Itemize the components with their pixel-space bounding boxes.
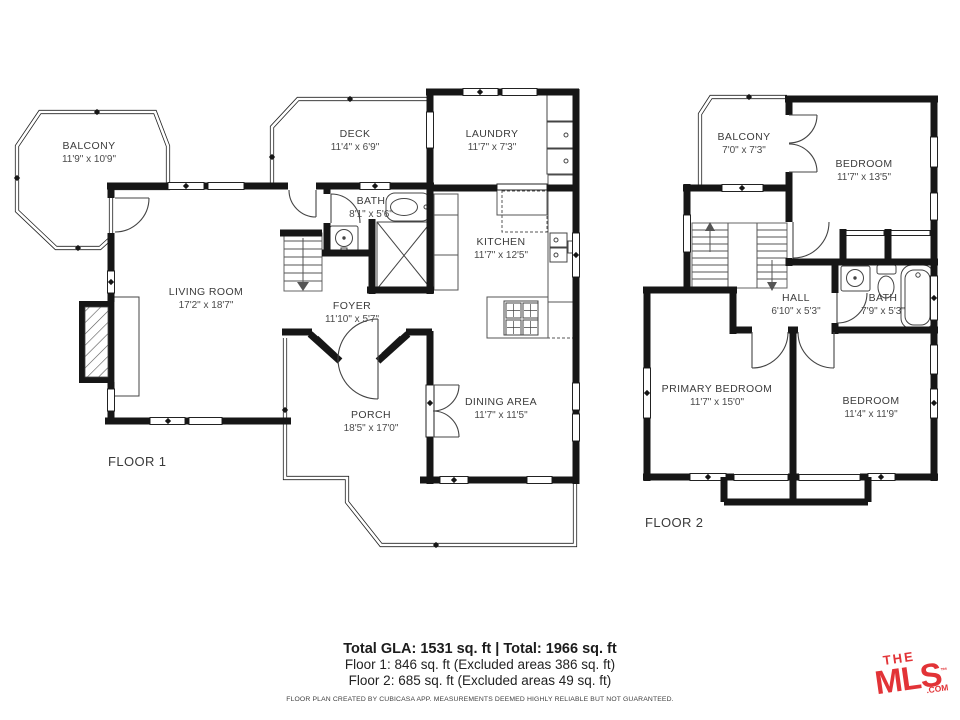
room-name: DINING AREA [465, 396, 537, 409]
room-dims: 11'7" x 7'3" [468, 141, 517, 154]
room-label-floor2-hall: HALL 6'10" x 5'3" [771, 292, 820, 318]
room-label-floor2-bedroom-top: BEDROOM 11'7" x 13'5" [835, 158, 892, 184]
room-label-floor1-kitchen: KITCHEN 11'7" x 12'5" [474, 236, 528, 262]
room-label-floor2-balcony: BALCONY 7'0" x 7'3" [718, 131, 771, 157]
room-label-floor1-bath: BATH 8'1" x 5'6" [349, 195, 393, 221]
shower-floor1-icon [377, 222, 431, 289]
room-name: KITCHEN [477, 236, 526, 249]
room-name: BATH [357, 195, 386, 208]
room-dims: 11'10" x 5'7" [325, 313, 379, 326]
room-dims: 18'5" x 17'0" [344, 422, 399, 435]
room-dims: 6'10" x 5'3" [771, 305, 820, 318]
room-name: LIVING ROOM [169, 286, 243, 299]
stove-icon [504, 301, 538, 335]
stairs-floor1-icon [284, 233, 322, 291]
room-dims: 8'1" x 5'6" [349, 208, 393, 221]
room-dims: 11'7" x 11'5" [474, 409, 527, 422]
total-gla-text: Total GLA: 1531 sq. ft | Total: 1966 sq.… [0, 641, 960, 657]
room-name: PRIMARY BEDROOM [662, 383, 773, 396]
room-dims: 17'2" x 18'7" [179, 299, 234, 312]
room-name: BATH [869, 292, 898, 305]
room-name: LAUNDRY [466, 128, 519, 141]
room-dims: 11'4" x 11'9" [844, 408, 897, 421]
room-label-floor1-living-room: LIVING ROOM 17'2" x 18'7" [169, 286, 243, 312]
floor1-area-text: Floor 1: 846 sq. ft (Excluded areas 386 … [0, 657, 960, 673]
room-dims: 7'9" x 5'3" [861, 305, 905, 318]
room-label-floor1-porch: PORCH 18'5" x 17'0" [344, 409, 399, 435]
floor2-title: FLOOR 2 [645, 515, 703, 530]
room-label-floor1-laundry: LAUNDRY 11'7" x 7'3" [466, 128, 519, 154]
room-name: BALCONY [63, 140, 116, 153]
room-label-floor1-foyer: FOYER 11'10" x 5'7" [325, 300, 379, 326]
bathtub-floor2-icon [901, 265, 934, 329]
floor2-area-text: Floor 2: 685 sq. ft (Excluded areas 49 s… [0, 673, 960, 689]
room-dims: 11'9" x 10'9" [62, 153, 116, 166]
room-label-floor1-deck: DECK 11'4" x 6'9" [331, 128, 380, 154]
room-name: BEDROOM [842, 395, 899, 408]
room-name: PORCH [351, 409, 391, 422]
room-label-floor1-balcony: BALCONY 11'9" x 10'9" [62, 140, 116, 166]
room-label-floor1-dining-area: DINING AREA 11'7" x 11'5" [465, 396, 537, 422]
room-name: BEDROOM [835, 158, 892, 171]
room-label-floor2-bath: BATH 7'9" x 5'3" [861, 292, 905, 318]
floorplan-page: BALCONY 11'9" x 10'9" DECK 11'4" x 6'9" … [0, 0, 960, 720]
room-name: FOYER [333, 300, 371, 313]
room-dims: 11'7" x 15'0" [690, 396, 744, 409]
fireplace-icon [79, 297, 139, 396]
room-name: DECK [340, 128, 371, 141]
washer-dryer-icon [547, 95, 574, 174]
disclaimer-text: FLOOR PLAN CREATED BY CUBICASA APP. MEAS… [0, 696, 960, 703]
sink-floor1-icon [330, 226, 358, 253]
room-dims: 11'7" x 13'5" [837, 171, 891, 184]
room-name: BALCONY [718, 131, 771, 144]
area-summary: Total GLA: 1531 sq. ft | Total: 1966 sq.… [0, 641, 960, 703]
room-dims: 11'7" x 12'5" [474, 249, 528, 262]
floor1-title: FLOOR 1 [108, 454, 166, 469]
room-dims: 11'4" x 6'9" [331, 141, 380, 154]
room-label-floor2-primary-bedroom: PRIMARY BEDROOM 11'7" x 15'0" [662, 383, 773, 409]
room-label-floor2-bedroom-bottom: BEDROOM 11'4" x 11'9" [842, 395, 899, 421]
sink-floor2-icon [841, 266, 870, 291]
stairs-floor2-icon [692, 222, 787, 291]
room-name: HALL [782, 292, 810, 305]
room-dims: 7'0" x 7'3" [722, 144, 766, 157]
trademark-symbol: ™ [940, 667, 948, 675]
